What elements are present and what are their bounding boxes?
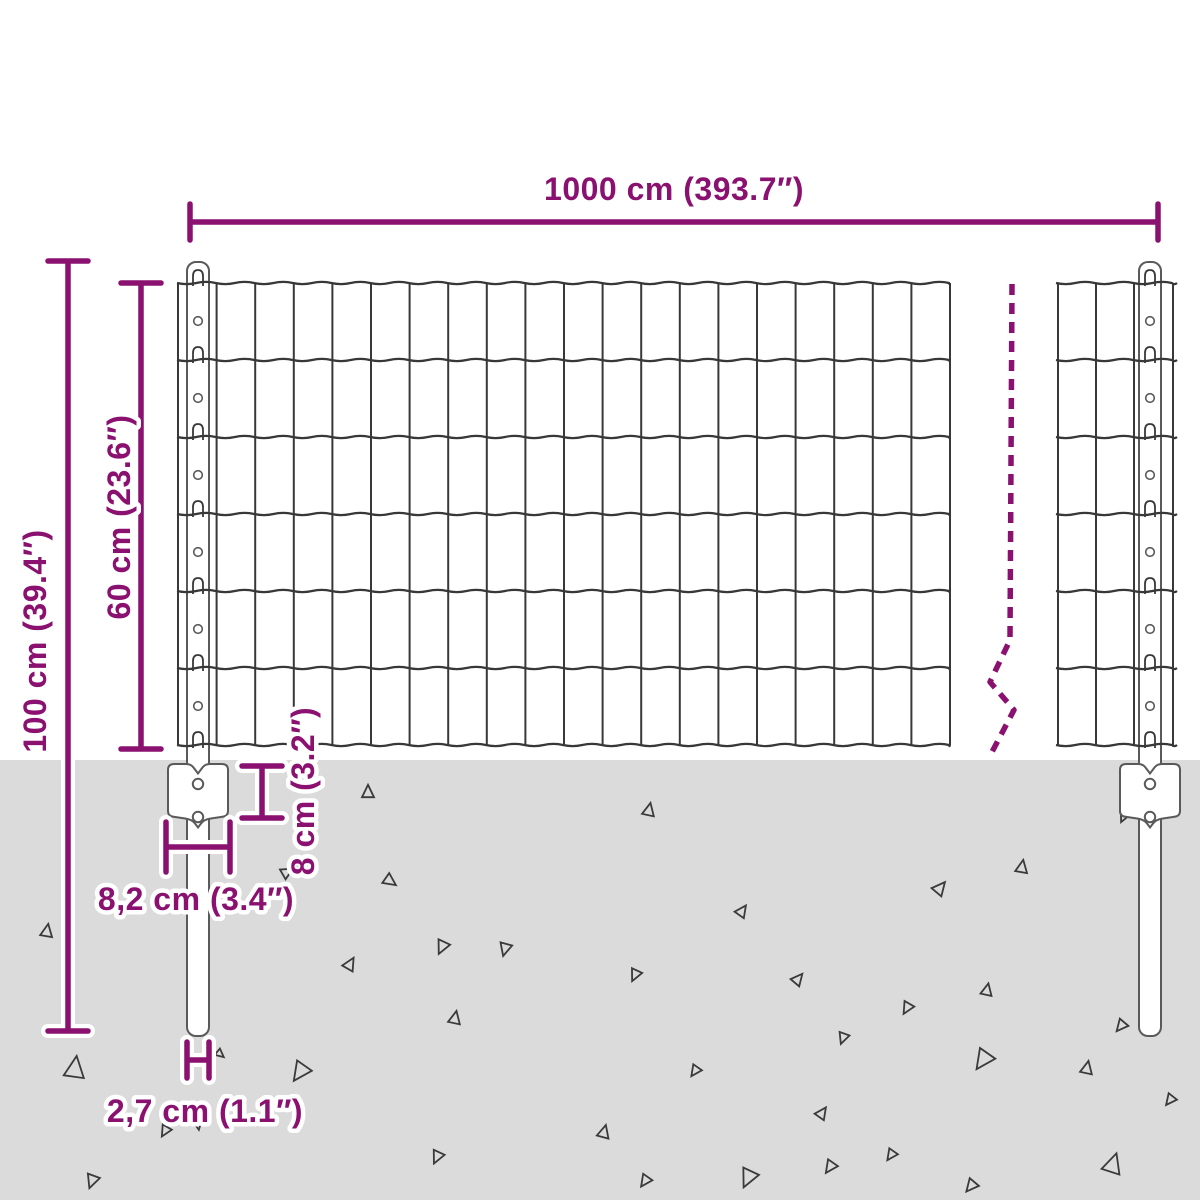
post-hole [1146,625,1155,634]
post-hole [194,702,203,711]
mesh-horizontal-wire [177,359,950,361]
post-hole [194,471,203,480]
post-hole [1146,548,1155,557]
bracket-hole [193,779,203,789]
diagram-canvas: 1000 cm (393.7″) 100 cm (39.4″) 60 cm (2… [0,0,1200,1200]
post-hole [1146,471,1155,480]
dim-anchor-width-label: 8,2 cm (3.4″) [98,881,294,917]
bracket-hole [193,812,203,822]
post-hole [1146,317,1155,326]
mesh-horizontal-wire [177,667,950,669]
dim-mesh-height-label: 60 cm (23.6″) [101,414,137,619]
mesh-horizontal-wire [177,590,950,592]
post-hole [1146,702,1155,711]
dim-total-height-label: 100 cm (39.4″) [17,529,53,752]
dim-mesh-height: 60 cm (23.6″) [101,283,161,749]
dim-total-width: 1000 cm (393.7″) [190,171,1158,240]
mesh-horizontal-wire [177,282,950,284]
post [187,262,209,1036]
mesh-horizontal-wire [177,513,950,515]
post-hole [194,317,203,326]
post-hole [194,548,203,557]
bracket-hole [1145,812,1155,822]
post-hole [194,394,203,403]
wire-mesh [177,282,1177,746]
dim-total-width-label: 1000 cm (393.7″) [544,171,804,207]
post-hole [194,625,203,634]
fence-dimension-diagram: 1000 cm (393.7″) 100 cm (39.4″) 60 cm (2… [0,0,1200,1200]
dim-post-width-label: 2,7 cm (1.1″) [107,1093,303,1129]
dim-anchor-depth-label: 8 cm (3.2″) [285,707,321,875]
mesh-horizontal-wire [177,436,950,438]
post [1139,262,1161,1036]
ground [0,760,1200,1200]
bracket-hole [1145,779,1155,789]
post-hole [1146,394,1155,403]
break-zigzag-line [990,284,1014,752]
